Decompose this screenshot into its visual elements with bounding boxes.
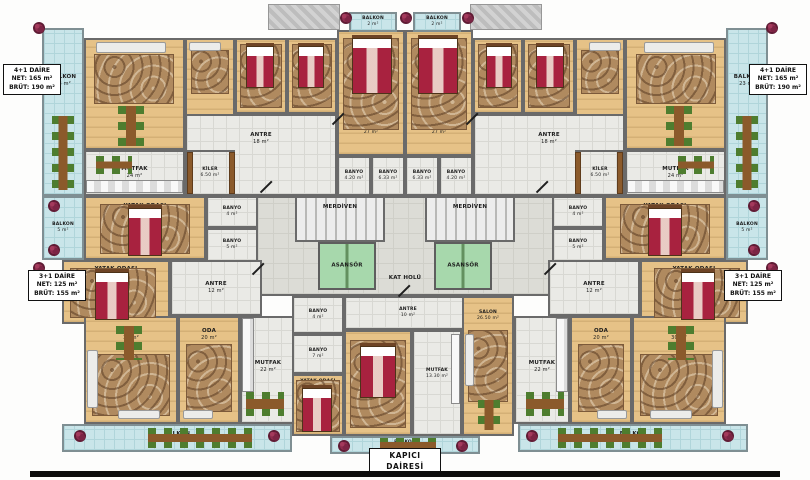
room-label-oda20-left: ODA20 m² bbox=[181, 328, 237, 342]
sofa-icon bbox=[183, 410, 213, 419]
counter-icon bbox=[242, 318, 254, 392]
dining-v-icon bbox=[668, 326, 694, 360]
bottom-bar bbox=[30, 471, 780, 477]
floor-plan-canvas: ResProperty зарубежная недвижимость KAT … bbox=[0, 0, 810, 480]
room-label-banyo420-right: BANYO4.20 m² bbox=[442, 170, 470, 182]
room-label-kiler-right: KİLER6.50 m² bbox=[578, 167, 622, 179]
room-banyo4-right: BANYO4 m² bbox=[552, 196, 604, 228]
hatch-icon bbox=[268, 4, 340, 30]
room-label-banyo4-right: BANYO4 m² bbox=[555, 206, 601, 218]
dining-h-icon bbox=[678, 156, 714, 174]
shelf-icon bbox=[575, 152, 581, 194]
room-label-asansor-right: ASANSÖR bbox=[437, 262, 489, 269]
sofa-icon bbox=[96, 42, 166, 53]
room-label-antre12-left: ANTRE12 m² bbox=[173, 281, 259, 295]
carpet-icon bbox=[468, 330, 508, 402]
shelf-icon bbox=[229, 152, 235, 194]
plant-icon bbox=[48, 244, 60, 256]
room-label-asansor-left: ASANSÖR bbox=[321, 262, 373, 269]
room-kat-holu: KAT HOLÜ bbox=[241, 196, 569, 296]
plant-icon bbox=[722, 430, 734, 442]
dining-v-icon bbox=[478, 400, 500, 430]
room-label-banyo4-left: BANYO4 m² bbox=[209, 206, 255, 218]
carpet-icon bbox=[581, 50, 619, 94]
counter-icon bbox=[451, 334, 460, 404]
room-label-banyo633-right: BANYO6.33 m² bbox=[408, 170, 436, 182]
carpet-icon bbox=[92, 354, 170, 416]
room-label-balkon2-left: BALKON2 m² bbox=[352, 16, 394, 28]
room-label-balkon5-left: BALKON5 m² bbox=[45, 222, 81, 234]
unit-label-apt-4plus1-right: 4+1 DAİRENET: 165 m²BRÜT: 190 m² bbox=[749, 64, 807, 95]
plant-icon bbox=[338, 440, 350, 452]
bed bbox=[360, 346, 396, 398]
sofa-icon bbox=[712, 350, 723, 408]
plant-icon bbox=[456, 440, 468, 452]
bed bbox=[128, 208, 162, 256]
room-label-balkon5-right: BALKON5 m² bbox=[729, 222, 765, 234]
room-antre12-right: ANTRE12 m² bbox=[548, 260, 640, 316]
counter-icon bbox=[556, 318, 568, 392]
room-banyo633-left: BANYO6.33 m² bbox=[371, 156, 405, 196]
bed bbox=[681, 272, 715, 320]
sofa-icon bbox=[597, 410, 627, 419]
carpet-icon bbox=[94, 54, 174, 104]
bed bbox=[95, 272, 129, 320]
room-label-oda20-right: ODA20 m² bbox=[573, 328, 629, 342]
unit-label-apt-3plus1-left: 3+1 DAİRENET: 125 m²BRÜT: 155 m² bbox=[28, 270, 86, 301]
shelf-icon bbox=[187, 152, 193, 194]
room-antre12-left: ANTRE12 m² bbox=[170, 260, 262, 316]
room-balkon2-right: BALKON2 m² bbox=[413, 12, 461, 32]
plant-icon bbox=[748, 200, 760, 212]
hatch-icon bbox=[470, 4, 542, 30]
sofa-icon bbox=[650, 410, 692, 419]
room-label-salon2650-kapici: SALON26.50 m² bbox=[465, 310, 511, 322]
room-banyo420-left: BANYO4.20 m² bbox=[337, 156, 371, 196]
sofa-icon bbox=[589, 42, 621, 51]
room-banyo633-right: BANYO6.33 m² bbox=[405, 156, 439, 196]
room-antre10-kapici: ANTRE10 m² bbox=[344, 296, 472, 330]
dining-v-icon bbox=[666, 106, 692, 146]
carpet-icon bbox=[578, 344, 624, 412]
plant-icon bbox=[48, 200, 60, 212]
room-label-balkon2-right: BALKON2 m² bbox=[416, 16, 458, 28]
bed bbox=[418, 38, 458, 94]
dining-v-icon bbox=[118, 106, 144, 146]
room-label-banyo633-left: BANYO6.33 m² bbox=[374, 170, 402, 182]
bed bbox=[536, 46, 564, 88]
bed bbox=[352, 38, 392, 94]
dining-h-icon bbox=[148, 428, 252, 448]
room-balkon2-left: BALKON2 m² bbox=[349, 12, 397, 32]
sofa-icon bbox=[465, 334, 474, 386]
carpet-icon bbox=[191, 50, 229, 94]
dining-v-icon bbox=[736, 116, 758, 190]
room-banyo5-right: BANYO5 m² bbox=[552, 228, 604, 262]
bed bbox=[486, 46, 512, 88]
room-banyo5-left: BANYO5 m² bbox=[206, 228, 258, 262]
room-asansor-right: ASANSÖR bbox=[434, 242, 492, 290]
room-label-banyo420-left: BANYO4.20 m² bbox=[340, 170, 368, 182]
room-label-antre18-right: ANTRE18 m² bbox=[476, 132, 622, 146]
plant-icon bbox=[340, 12, 352, 24]
bed bbox=[302, 388, 332, 432]
plant-icon bbox=[400, 12, 412, 24]
sofa-icon bbox=[118, 410, 160, 419]
shelf-icon bbox=[617, 152, 623, 194]
room-label-kiler-left: KİLER6.50 m² bbox=[188, 167, 232, 179]
room-merdiven-left: MERDİVEN bbox=[295, 196, 385, 242]
room-label-antre10-kapici: ANTRE10 m² bbox=[347, 307, 469, 319]
room-label-banyo5-left: BANYO5 m² bbox=[209, 239, 255, 251]
sofa-icon bbox=[644, 42, 714, 53]
unit-label-apt-3plus1-right: 3+1 DAİRENET: 125 m²BRÜT: 155 m² bbox=[724, 270, 782, 301]
plant-icon bbox=[748, 244, 760, 256]
dining-h-icon bbox=[246, 392, 284, 416]
counter-icon bbox=[627, 180, 724, 193]
room-label-merdiven-left: MERDİVEN bbox=[298, 204, 382, 211]
bed bbox=[648, 208, 682, 256]
carpet-icon bbox=[186, 344, 232, 412]
room-banyo4-left: BANYO4 m² bbox=[206, 196, 258, 228]
room-asansor-left: ASANSÖR bbox=[318, 242, 376, 290]
room-label-antre12-right: ANTRE12 m² bbox=[551, 281, 637, 295]
bed bbox=[298, 46, 324, 88]
dining-h-icon bbox=[558, 428, 662, 448]
dining-v-icon bbox=[52, 116, 74, 190]
room-label-kat-holu: KAT HOLÜ bbox=[244, 275, 566, 282]
plant-icon bbox=[766, 22, 778, 34]
plant-icon bbox=[268, 430, 280, 442]
dining-h-icon bbox=[96, 156, 132, 174]
dining-v-icon bbox=[116, 326, 142, 360]
room-banyo7-kapici: BANYO7 m² bbox=[292, 334, 344, 374]
room-label-banyo7-kapici: BANYO7 m² bbox=[295, 348, 341, 360]
bed bbox=[246, 46, 274, 88]
counter-icon bbox=[86, 180, 183, 193]
unit-label-apt-4plus1-left: 4+1 DAİRENET: 165 m²BRÜT: 190 m² bbox=[3, 64, 61, 95]
sofa-icon bbox=[87, 350, 98, 408]
room-balkon5-right: BALKON5 m² bbox=[726, 196, 768, 260]
carpet-icon bbox=[636, 54, 716, 104]
room-label-banyo5-right: BANYO5 m² bbox=[555, 239, 601, 251]
room-label-antre18-left: ANTRE18 m² bbox=[188, 132, 334, 146]
room-label-banyo4-kapici: BANYO4 m² bbox=[295, 309, 341, 321]
room-label-merdiven-right: MERDİVEN bbox=[428, 204, 512, 211]
room-banyo420-right: BANYO4.20 m² bbox=[439, 156, 473, 196]
plant-icon bbox=[526, 430, 538, 442]
plant-icon bbox=[74, 430, 86, 442]
plant-icon bbox=[462, 12, 474, 24]
sofa-icon bbox=[189, 42, 221, 51]
dining-h-icon bbox=[526, 392, 564, 416]
carpet-icon bbox=[640, 354, 718, 416]
room-banyo4-kapici: BANYO4 m² bbox=[292, 296, 344, 334]
plant-icon bbox=[33, 22, 45, 34]
room-merdiven-right: MERDİVEN bbox=[425, 196, 515, 242]
